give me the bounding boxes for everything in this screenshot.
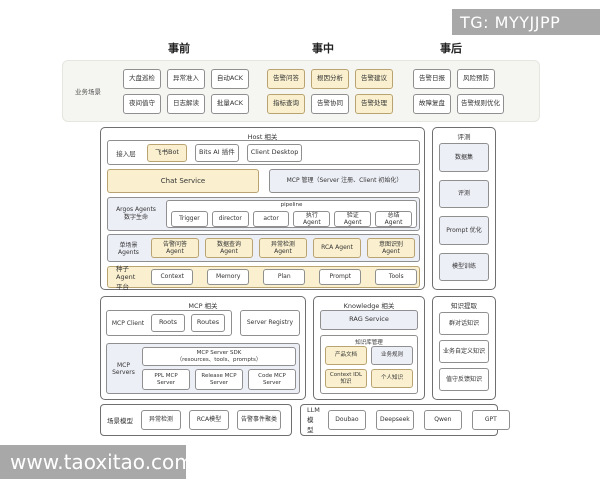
llm-model-items: DoubaoDeepseekQwenGPT [328,410,510,430]
mcp-management-node: MCP 管理（Server 注册、Client 初始化） [269,169,420,193]
scenario-node: 故障复盘 [413,94,451,114]
pipeline-node: 执行Agent [293,211,330,227]
mcp-server-node: PPL MCP Server [142,369,190,390]
model-node: Deepseek [376,410,414,430]
evaluation-items: 数据集评测Prompt 优化模型训练 [439,143,489,281]
evaluation-node: 数据集 [439,143,489,172]
scenario-node: 夜间值守 [123,94,161,114]
knowledge-extraction-items: 群对话知识业务自定义知识值守反馈知识 [439,312,489,391]
scene-models-label: 场景模型 [107,415,133,425]
argos-agents-row: Argos Agents 数字生命 pipeline Triggerdirect… [107,197,420,231]
knowledge-base-items: 产品文档业务规则Context IDL 知识个人知识 [325,346,413,388]
mid-scenario-group: 告警问答根因分析告警建议 指标查询告警协同告警处理 [267,69,393,114]
agent-node: 数据查询Agent [205,238,253,258]
phase-header-mid: 事中 [301,40,345,56]
platform-node: Memory [207,269,249,285]
pipeline-node: actor [253,211,290,227]
scenario-node: 告警问答 [267,69,305,89]
mcp-server-node: Code MCP Server [248,369,296,390]
server-registry-node: Server Registry [240,310,300,336]
scenario-node: 告警日报 [413,69,451,89]
seed-agent-platform-row: 种子Agent 平台 ContextMemoryPlanPromptTools [107,266,420,288]
mcp-section-title: MCP 相关 [101,300,305,310]
mid-scenario-row2: 指标查询告警协同告警处理 [267,94,393,114]
evaluation-section-title: 评测 [433,131,495,141]
mcp-client-row: MCP Client RootsRoutes Server Registry [106,310,300,336]
phase-header-post: 事后 [429,40,473,56]
argos-agents-label: Argos Agents 数字生命 [110,200,162,228]
scenario-node: 告警处理 [355,94,393,114]
evaluation-section: 评测 数据集评测Prompt 优化模型训练 [432,127,496,290]
pipeline-items: Triggerdirectoractor执行Agent验证Agent总结Agen… [171,211,412,224]
scenario-node: 告警规则优化 [457,94,504,114]
seed-platform-items: ContextMemoryPlanPromptTools [151,269,417,285]
pre-scenario-row1: 大盘巡检异常准入自动ACK [123,69,249,89]
knowledge-node: 产品文档 [325,346,367,365]
mcp-client-node: Routes [191,314,225,332]
mcp-client-label: MCP Client [111,320,145,327]
access-layer-label: 接入层 [113,148,139,158]
pipeline-node: Trigger [171,211,208,227]
scenario-node: 告警协同 [311,94,349,114]
access-layer-row: 接入层 飞书BotBits AI 插件Client Desktop [107,140,420,165]
chat-service-node: Chat Service [107,169,259,193]
model-node: GPT [472,410,510,430]
mcp-servers-label: MCP Servers [110,362,137,376]
pipeline-title: pipeline [167,202,416,208]
llm-models-label: LLM模型 [307,406,320,434]
site-watermark-badge: www.taoxitao.com [0,445,186,479]
access-layer-items: 飞书BotBits AI 插件Client Desktop [147,144,302,162]
scene-model-items: 异常检测RCA模型告警事件聚类 [141,410,281,430]
pipeline-node: director [212,211,249,227]
mcp-servers-content: MCP Server SDK （resources、tools、prompts）… [142,347,296,390]
model-node: 告警事件聚类 [237,410,281,430]
argos-label-line2: 数字生命 [124,214,148,222]
business-scenarios-panel: 业务场景 大盘巡检异常准入自动ACK 夜间值守日志解读批量ACK 告警问答根因分… [62,60,540,122]
model-node: RCA模型 [189,410,229,430]
evaluation-node: Prompt 优化 [439,216,489,245]
single-scene-agents-label: 单场景Agents [112,240,145,256]
evaluation-node: 模型训练 [439,253,489,282]
llm-models-strip: LLM模型 DoubaoDeepseekQwenGPT [300,404,498,436]
knowledge-section-title: Knowledge 相关 [314,300,424,310]
pre-scenario-row2: 夜间值守日志解读批量ACK [123,94,249,114]
phase-header-pre: 事前 [157,40,201,56]
pre-scenario-group: 大盘巡检异常准入自动ACK 夜间值守日志解读批量ACK [123,69,249,114]
knowledge-node: 个人知识 [371,369,413,388]
platform-node: Prompt [319,269,361,285]
agent-node: 意图识别Agent [367,238,415,258]
model-node: 异常检测 [141,410,181,430]
scenario-node: 指标查询 [267,94,305,114]
post-scenario-row2: 故障复盘告警规则优化 [413,94,504,114]
knowledge-extraction-title: 知识提取 [433,300,495,310]
knowledge-extraction-node: 群对话知识 [439,312,489,335]
scenario-node: 根因分析 [311,69,349,89]
business-scenarios-label: 业务场景 [71,86,105,96]
evaluation-node: 评测 [439,180,489,209]
scenario-node: 大盘巡检 [123,69,161,89]
post-scenario-group: 告警日报风险预防 故障复盘告警规则优化 [413,69,504,114]
model-node: Qwen [424,410,462,430]
rag-service-node: RAG Service [320,310,418,330]
access-node: Bits AI 插件 [195,144,239,162]
knowledge-extraction-node: 业务自定义知识 [439,340,489,363]
mcp-server-sdk-line2: （resources、tools、prompts） [177,357,262,364]
single-scene-agents-row: 单场景Agents 告警问答Agent数据查询Agent异常检测AgentRCA… [107,234,420,262]
mcp-server-items: PPL MCP ServerRelease MCP ServerCode MCP… [142,369,296,390]
mcp-section: MCP 相关 MCP Client RootsRoutes Server Reg… [100,296,306,400]
knowledge-section: Knowledge 相关 RAG Service 知识库管理 产品文档业务规则C… [313,296,425,400]
pipeline-node: 验证Agent [334,211,371,227]
mcp-servers-container: MCP Servers MCP Server SDK （resources、to… [106,343,300,394]
agent-node: 告警问答Agent [151,238,199,258]
knowledge-node: 业务规则 [371,346,413,365]
knowledge-base-container: 知识库管理 产品文档业务规则Context IDL 知识个人知识 [320,335,418,394]
access-node: Client Desktop [247,144,303,162]
agent-node: 异常检测Agent [259,238,307,258]
mid-scenario-row1: 告警问答根因分析告警建议 [267,69,393,89]
knowledge-base-title: 知识库管理 [321,338,417,346]
argos-label-line1: Argos Agents [116,206,156,214]
single-scene-agent-items: 告警问答Agent数据查询Agent异常检测AgentRCA Agent意图识别… [151,238,415,258]
scenario-node: 告警建议 [355,69,393,89]
scenario-node: 自动ACK [211,69,249,89]
post-scenario-row1: 告警日报风险预防 [413,69,504,89]
knowledge-node: Context IDL 知识 [325,369,367,388]
platform-node: Context [151,269,193,285]
knowledge-extraction-section: 知识提取 群对话知识业务自定义知识值守反馈知识 [432,296,496,400]
pipeline-container: pipeline Triggerdirectoractor执行Agent验证Ag… [166,200,417,228]
scenario-node: 批量ACK [211,94,249,114]
host-section: Host 相关 接入层 飞书BotBits AI 插件Client Deskto… [100,127,425,290]
scenario-node: 日志解读 [167,94,205,114]
scene-models-strip: 场景模型 异常检测RCA模型告警事件聚类 [100,404,292,436]
mcp-server-sdk-line1: MCP Server SDK [197,350,242,357]
mcp-client-node: Roots [151,314,185,332]
platform-node: Tools [375,269,417,285]
scenario-node: 风险预防 [457,69,495,89]
mcp-server-sdk-node: MCP Server SDK （resources、tools、prompts） [142,347,296,366]
tg-watermark-badge: TG: MYYJJPP [452,9,600,35]
pipeline-node: 总结Agent [375,211,412,227]
platform-node: Plan [263,269,305,285]
knowledge-extraction-node: 值守反馈知识 [439,368,489,391]
access-node: 飞书Bot [147,144,187,162]
scenario-node: 异常准入 [167,69,205,89]
seed-agent-platform-label: 种子Agent 平台 [116,263,135,291]
model-node: Doubao [328,410,366,430]
mcp-client-items: RootsRoutes [151,314,225,332]
mcp-client-container: MCP Client RootsRoutes [106,310,232,336]
mcp-server-node: Release MCP Server [195,369,243,390]
agent-node: RCA Agent [313,238,361,258]
